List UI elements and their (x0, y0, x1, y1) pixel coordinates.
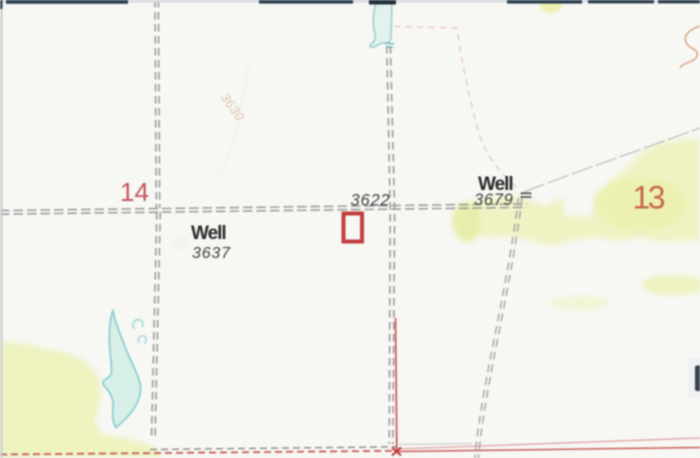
svg-text:13: 13 (633, 180, 665, 216)
svg-text:14: 14 (120, 177, 149, 207)
svg-text:3679: 3679 (474, 191, 514, 209)
svg-text:3637: 3637 (192, 245, 231, 262)
svg-text:Well: Well (191, 223, 226, 244)
svg-text:3622: 3622 (351, 192, 391, 210)
